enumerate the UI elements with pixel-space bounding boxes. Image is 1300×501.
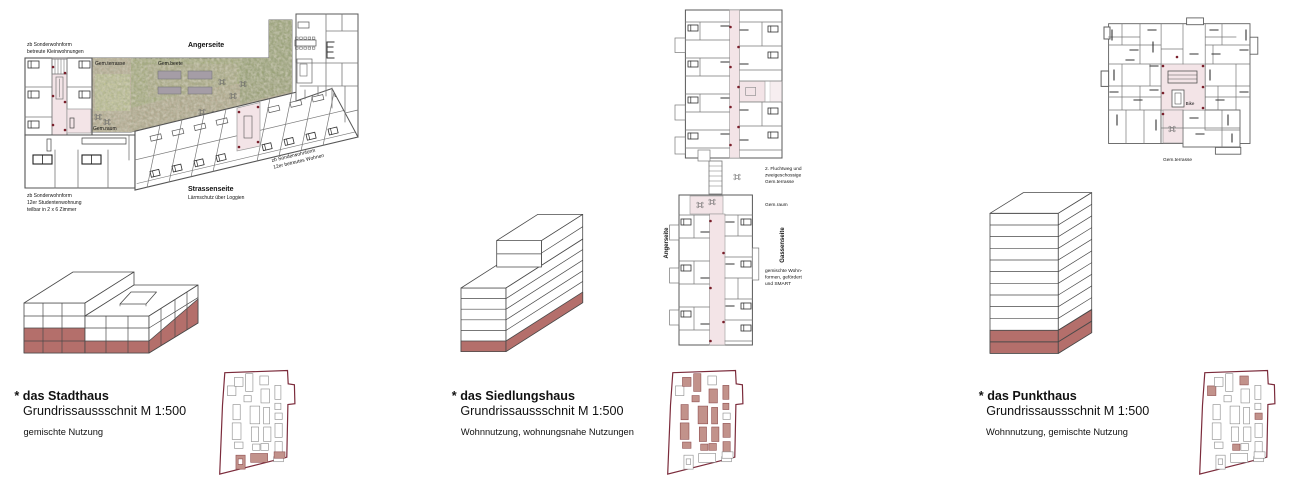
- svg-text:Gem.raum: Gem.raum: [93, 126, 117, 132]
- svg-text:Gem.beete: Gem.beete: [158, 61, 183, 67]
- svg-text:und SMART: und SMART: [765, 281, 791, 287]
- svg-text:Gassenseite: Gassenseite: [780, 227, 786, 263]
- svg-text:zb Sonderwohnform: zb Sonderwohnform: [27, 42, 72, 48]
- svg-text:2. Fluchtweg und: 2. Fluchtweg und: [765, 166, 802, 172]
- svg-text:Angerseite: Angerseite: [664, 227, 670, 259]
- svg-text:Gem.terrasse: Gem.terrasse: [1163, 157, 1192, 163]
- svg-text:teilbar in 2 x 6 Zimmer: teilbar in 2 x 6 Zimmer: [27, 207, 77, 213]
- svg-text:zb Sonderwohnform: zb Sonderwohnform: [27, 193, 72, 199]
- svg-text:12er Studentenwohnung: 12er Studentenwohnung: [27, 200, 82, 206]
- svg-text:gemischte Wohn-: gemischte Wohn-: [765, 268, 803, 274]
- svg-text:gemischte Nutzung: gemischte Nutzung: [24, 427, 104, 437]
- svg-text:Grundrissaussschnit M 1:500: Grundrissaussschnit M 1:500: [986, 404, 1149, 418]
- svg-text:Gem.terrasse: Gem.terrasse: [95, 61, 126, 67]
- svg-text:betreute Kleinwohnungen: betreute Kleinwohnungen: [27, 49, 84, 55]
- svg-text:Wohnnutzung, gemischte Nutzung: Wohnnutzung, gemischte Nutzung: [986, 427, 1128, 437]
- svg-text:Lärmschutz über Loggien: Lärmschutz über Loggien: [188, 195, 245, 201]
- svg-text:Gem.raum: Gem.raum: [765, 202, 788, 208]
- svg-text:* das Stadthaus: * das Stadthaus: [14, 389, 108, 403]
- svg-text:Grundrissaussschnit M 1:500: Grundrissaussschnit M 1:500: [23, 404, 186, 418]
- svg-text:Bike: Bike: [1186, 101, 1195, 106]
- svg-text:Gem.terrasse: Gem.terrasse: [765, 179, 794, 185]
- svg-text:Grundrissaussschnit M 1:500: Grundrissaussschnit M 1:500: [460, 404, 623, 418]
- svg-text:* das Punkthaus: * das Punkthaus: [979, 389, 1077, 403]
- svg-text:Strassenseite: Strassenseite: [188, 186, 234, 193]
- svg-text:Wohnnutzung, wohnungsnahe Nutz: Wohnnutzung, wohnungsnahe Nutzungen: [461, 427, 634, 437]
- svg-text:* das Siedlungshaus: * das Siedlungshaus: [452, 389, 575, 403]
- svg-text:formen, gefördert: formen, gefördert: [765, 275, 802, 281]
- svg-text:zweigeschossige: zweigeschossige: [765, 173, 802, 179]
- svg-text:Angerseite: Angerseite: [188, 42, 224, 49]
